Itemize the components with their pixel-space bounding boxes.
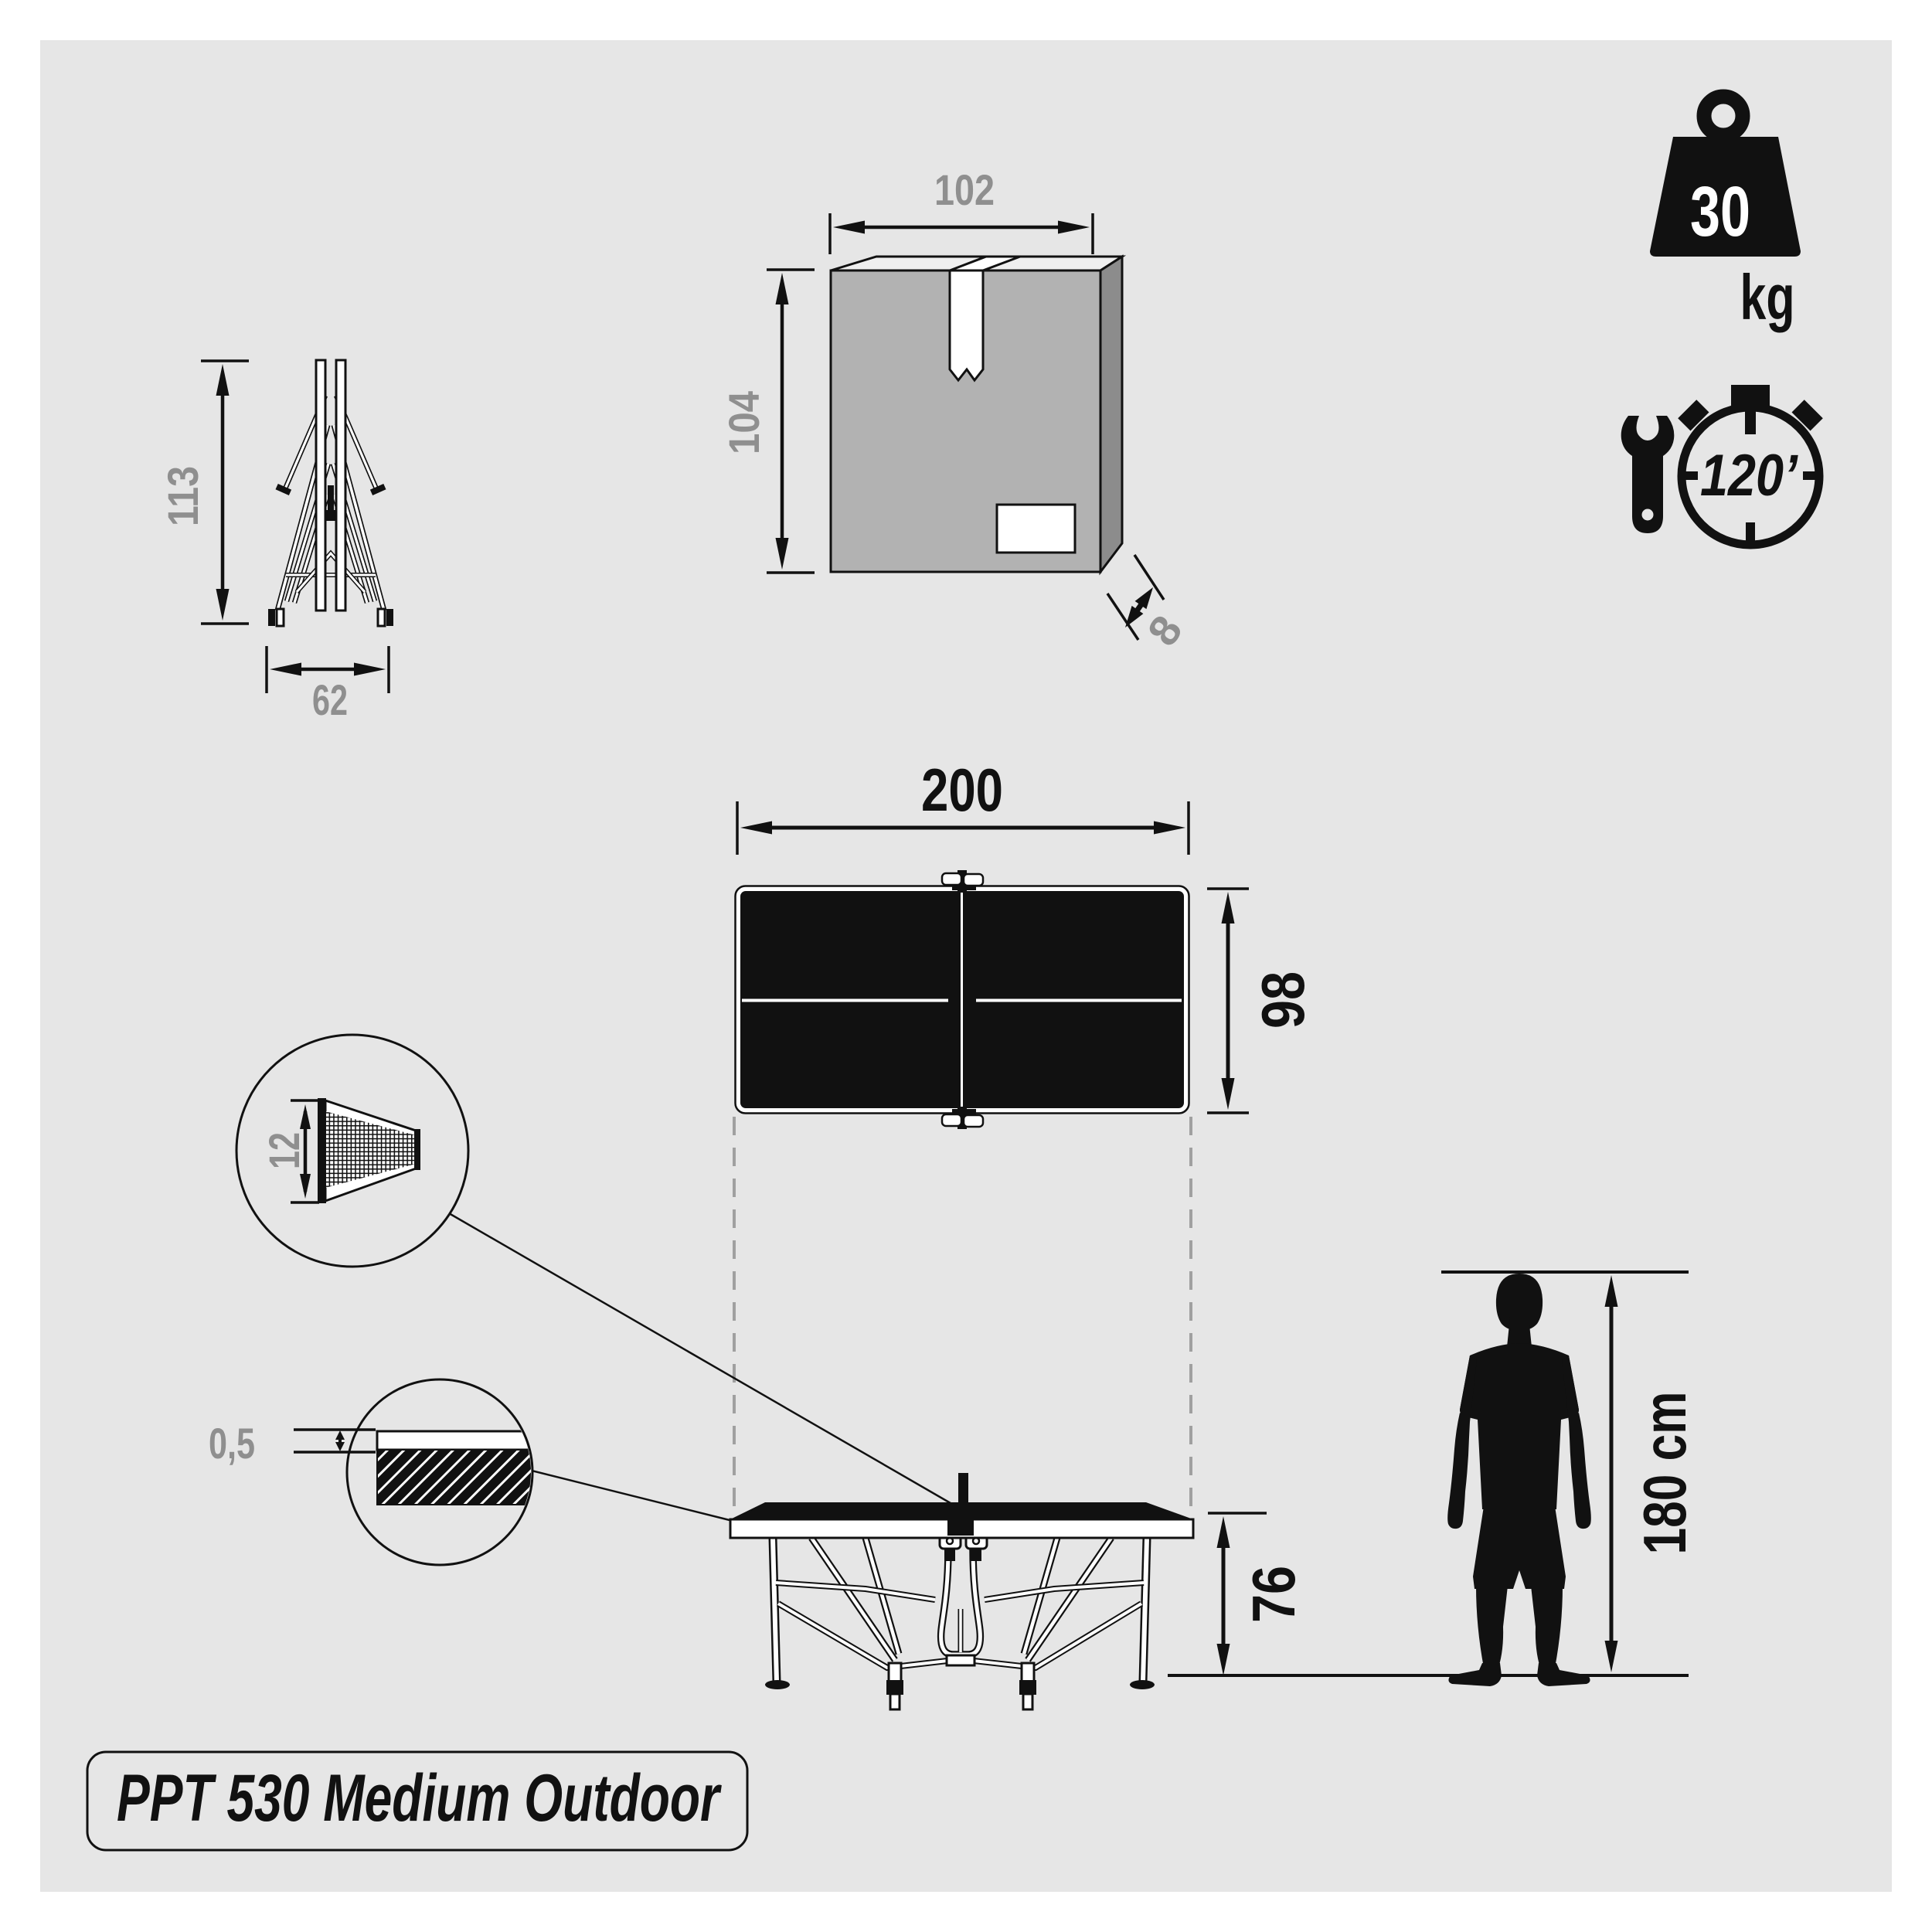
- svg-text:113: 113: [158, 466, 207, 526]
- svg-text:kg: kg: [1740, 261, 1795, 333]
- svg-text:0,5: 0,5: [209, 1419, 255, 1468]
- svg-text:PPT 530 Medium Outdoor: PPT 530 Medium Outdoor: [117, 1761, 722, 1835]
- svg-text:76: 76: [1240, 1566, 1308, 1623]
- svg-text:200: 200: [921, 756, 1003, 824]
- svg-text:62: 62: [312, 675, 348, 724]
- svg-text:30: 30: [1690, 172, 1750, 251]
- svg-text:98: 98: [1249, 971, 1317, 1029]
- svg-text:180 cm: 180 cm: [1631, 1392, 1699, 1555]
- svg-text:120’: 120’: [1700, 443, 1798, 509]
- svg-text:102: 102: [934, 165, 995, 214]
- svg-text:12: 12: [260, 1132, 308, 1169]
- svg-text:104: 104: [719, 391, 768, 454]
